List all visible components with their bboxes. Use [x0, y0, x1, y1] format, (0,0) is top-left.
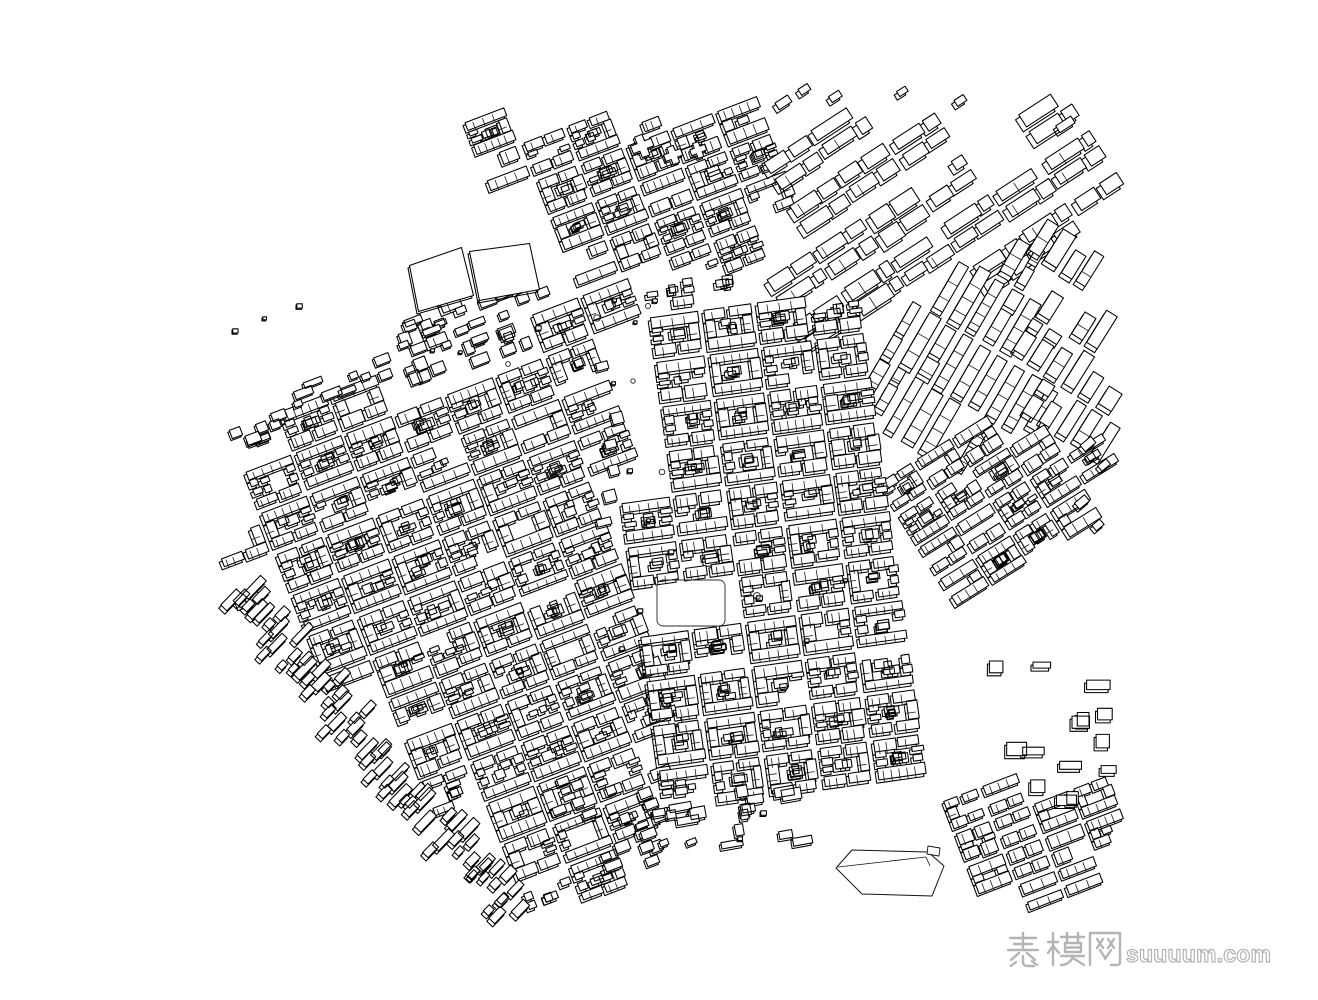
svg-text:suuuum.com: suuuum.com — [1126, 941, 1271, 967]
